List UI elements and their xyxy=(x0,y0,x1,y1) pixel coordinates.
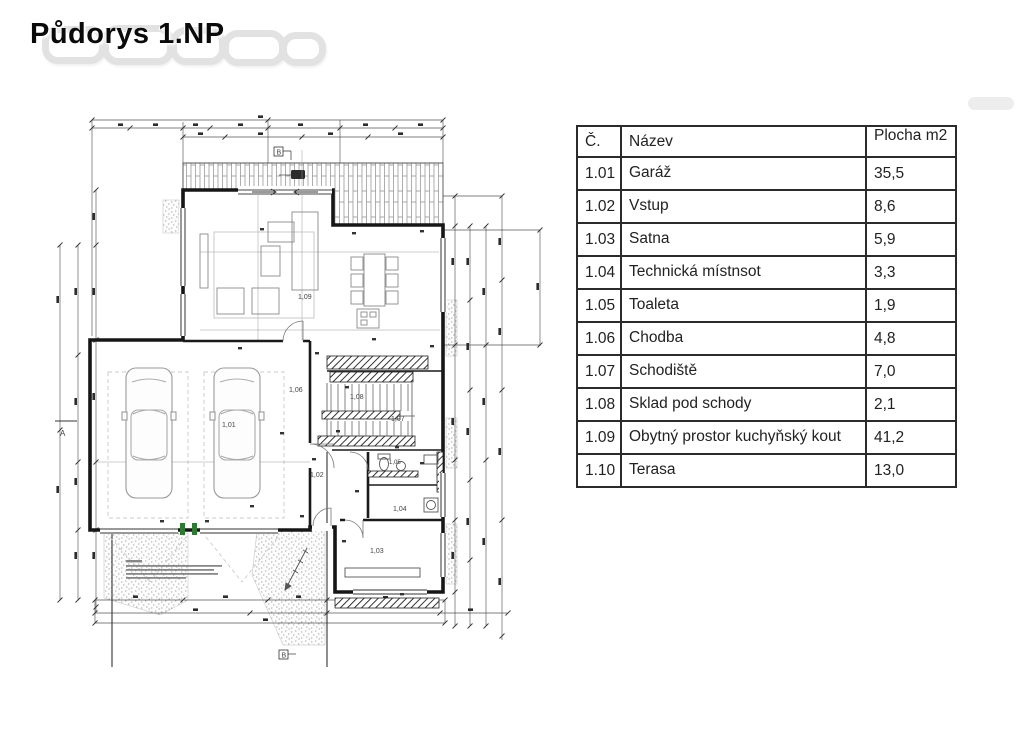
room-label-tech: 1,04 xyxy=(393,506,407,513)
table-row: 1.02 Vstup 8,6 xyxy=(577,190,956,223)
table-row: 1.01 Garáž 35,5 xyxy=(577,157,956,190)
room-name: Obytný prostor kuchyňský kout xyxy=(621,421,866,454)
entry-door-opening xyxy=(312,523,332,531)
svg-text:B: B xyxy=(282,653,287,660)
header-name: Název xyxy=(621,126,866,157)
room-label-hall: 1,06 xyxy=(289,387,303,394)
room-name: Šatna xyxy=(621,223,866,256)
svg-text:B: B xyxy=(277,150,282,157)
room-area: 7,0 xyxy=(866,355,956,388)
rooms-table: Č. Název Plocha m2 1.01 Garáž 35,5 1.02 … xyxy=(576,125,957,488)
room-label-dressing: 1,03 xyxy=(370,548,384,555)
paved-strip xyxy=(335,598,439,608)
room-number: 1.03 xyxy=(577,223,621,256)
room-area: 4,8 xyxy=(866,322,956,355)
room-name: Vstup xyxy=(621,190,866,223)
room-area: 5,9 xyxy=(866,223,956,256)
room-label-stairs: 1,07 xyxy=(391,416,405,423)
header-number: Č. xyxy=(577,126,621,157)
threshold-marker-green xyxy=(180,523,185,535)
header-area: Plocha m2 xyxy=(866,126,956,157)
section-marker-b-top: B xyxy=(274,147,291,160)
sliding-door xyxy=(238,186,332,195)
table-row: 1.10 Terasa 13,0 xyxy=(577,454,956,487)
room-label-living: 1,09 xyxy=(298,294,312,301)
table-row: 1.08 Sklad pod schody 2,1 xyxy=(577,388,956,421)
svg-text:A: A xyxy=(60,429,66,438)
room-name: Toaleta xyxy=(621,289,866,322)
room-area: 35,5 xyxy=(866,157,956,190)
table-row: 1.04 Technická místnsot 3,3 xyxy=(577,256,956,289)
room-number: 1.02 xyxy=(577,190,621,223)
section-marker-a: A xyxy=(55,421,77,438)
room-area: 8,6 xyxy=(866,190,956,223)
room-number: 1.09 xyxy=(577,421,621,454)
page-title: Půdorys 1.NP xyxy=(30,18,225,51)
room-area: 41,2 xyxy=(866,421,956,454)
room-name: Chodba xyxy=(621,322,866,355)
terrace-label-smudge xyxy=(291,170,305,179)
room-number: 1.08 xyxy=(577,388,621,421)
table-row: 1.03 Šatna 5,9 xyxy=(577,223,956,256)
table-row: 1.05 Toaleta 1,9 xyxy=(577,289,956,322)
room-number: 1.06 xyxy=(577,322,621,355)
room-name: Sklad pod schody xyxy=(621,388,866,421)
kitchen-counter xyxy=(327,356,428,369)
room-number: 1.05 xyxy=(577,289,621,322)
room-name: Terasa xyxy=(621,454,866,487)
room-area: 1,9 xyxy=(866,289,956,322)
room-number: 1.10 xyxy=(577,454,621,487)
room-label-toilet: 1,05 xyxy=(389,460,401,466)
table-row: 1.09 Obytný prostor kuchyňský kout 41,2 xyxy=(577,421,956,454)
room-name: Technická místnsot xyxy=(621,256,866,289)
table-header-row: Č. Název Plocha m2 xyxy=(577,126,956,157)
table-row: 1.07 Schodiště 7,0 xyxy=(577,355,956,388)
car-1 xyxy=(122,368,176,498)
room-name: Garáž xyxy=(621,157,866,190)
room-number: 1.07 xyxy=(577,355,621,388)
room-area: 3,3 xyxy=(866,256,956,289)
room-area: 13,0 xyxy=(866,454,956,487)
table-row: 1.06 Chodba 4,8 xyxy=(577,322,956,355)
room-area: 2,1 xyxy=(866,388,956,421)
room-label-garage: 1,01 xyxy=(222,422,236,429)
car-2 xyxy=(210,368,264,498)
room-number: 1.01 xyxy=(577,157,621,190)
threshold-marker-green xyxy=(192,523,197,535)
section-marker-b-bottom: B xyxy=(279,650,296,660)
room-name: Schodiště xyxy=(621,355,866,388)
page: Půdorys 1.NP xyxy=(0,0,1024,751)
room-number: 1.04 xyxy=(577,256,621,289)
room-label-storage: 1,08 xyxy=(350,394,364,401)
room-label-entry: 1,02 xyxy=(310,472,324,479)
